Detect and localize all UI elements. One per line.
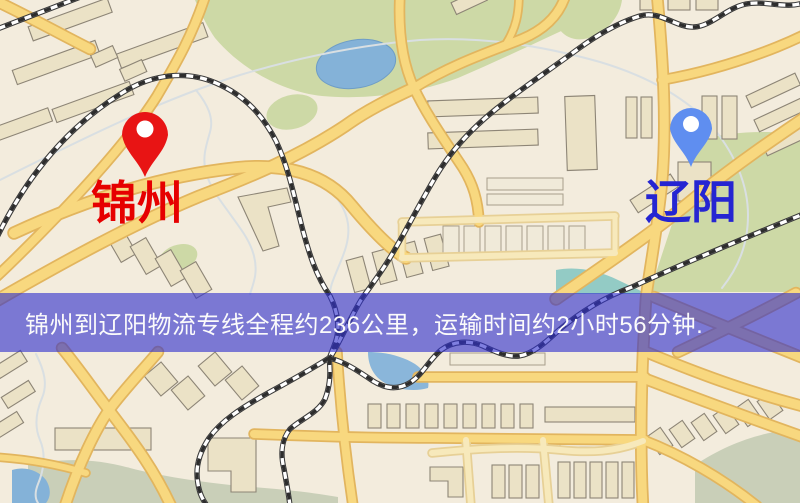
map-screenshot: 锦州 辽阳 锦州到辽阳物流专线全程约236公里，运输时间约2小时56分钟. <box>0 0 800 503</box>
origin-pin-hole <box>137 121 154 138</box>
destination-pin-hole <box>683 116 699 132</box>
route-info-banner: 锦州到辽阳物流专线全程约236公里，运输时间约2小时56分钟. <box>0 293 800 352</box>
destination-label: 辽阳 <box>645 177 737 228</box>
route-info-text: 锦州到辽阳物流专线全程约236公里，运输时间约2小时56分钟. <box>25 305 703 340</box>
origin-label: 锦州 <box>91 178 183 229</box>
map[interactable]: 锦州 辽阳 <box>0 0 800 503</box>
